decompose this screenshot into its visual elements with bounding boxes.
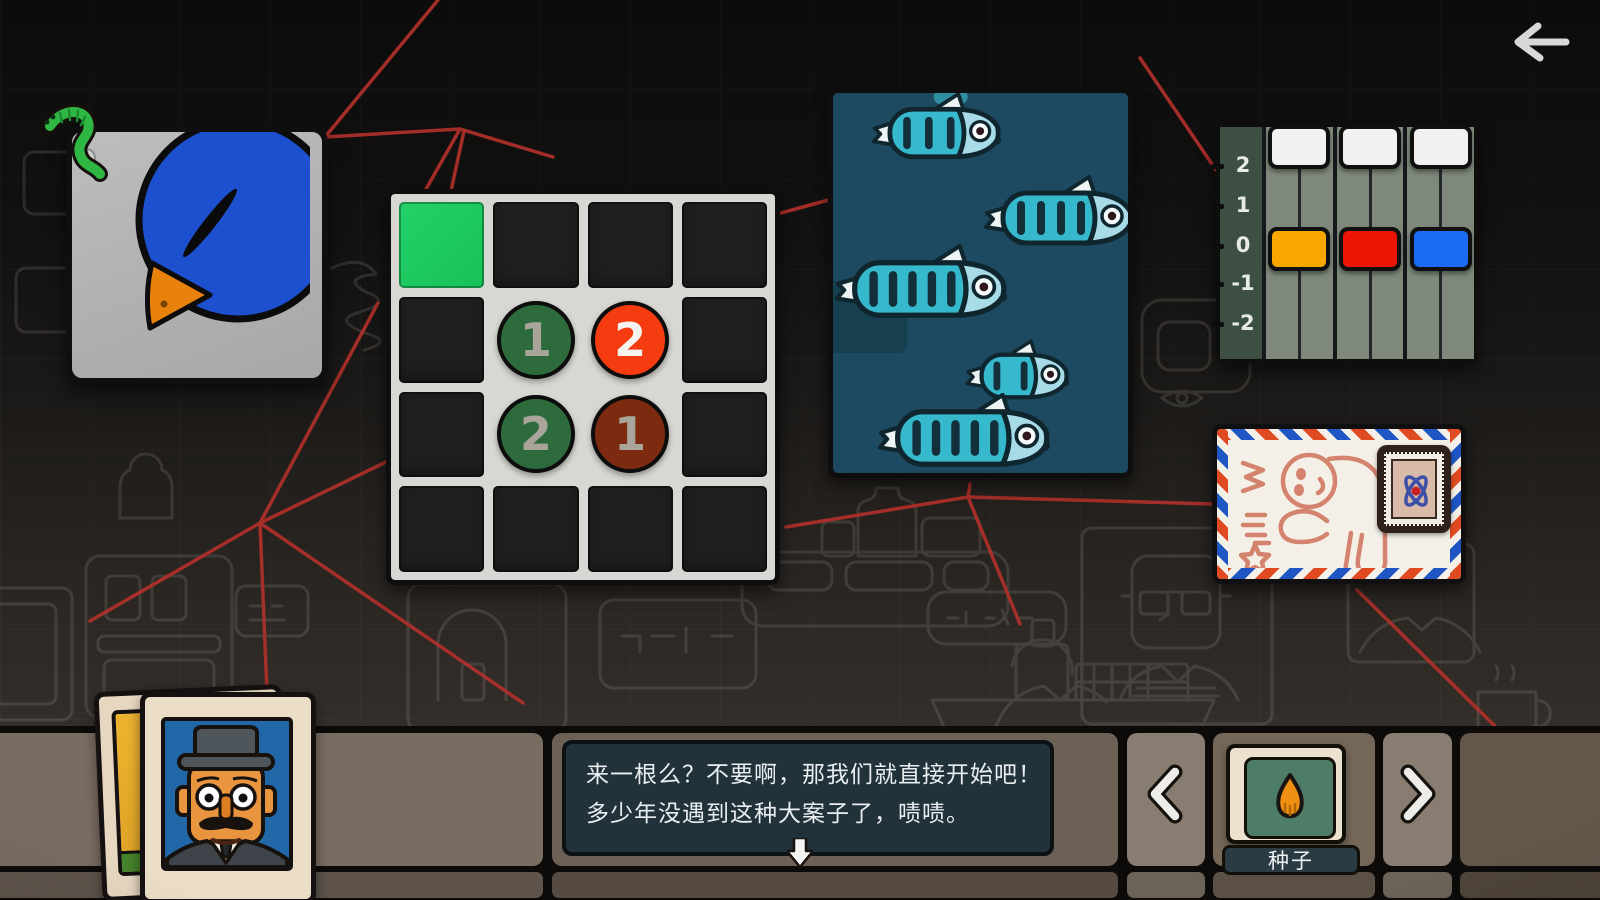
slider-block-value[interactable]: [1268, 227, 1330, 271]
atom-icon: [1391, 459, 1437, 519]
chevron-left-icon: [1143, 764, 1187, 824]
scale-tick: [1211, 282, 1224, 287]
continue-arrow-icon[interactable]: [787, 838, 813, 871]
grid-cell-r2c2[interactable]: 1: [588, 392, 673, 478]
airmail-border: [1217, 568, 1461, 579]
scale-label: -1: [1228, 271, 1258, 295]
evidence-board: 1221 210-1-2: [0, 0, 1600, 900]
grid-cell-r1c3[interactable]: [682, 297, 767, 383]
item-frame: [1244, 757, 1336, 839]
bar-strip: [1383, 872, 1452, 898]
grid-cell-r0c3[interactable]: [682, 202, 767, 288]
grid-cell-r0c1[interactable]: [493, 202, 578, 288]
grid-puzzle: 1221: [386, 189, 780, 585]
grid-cell-r3c0[interactable]: [399, 486, 484, 572]
chevron-right-icon: [1396, 764, 1440, 824]
bar-strip: [552, 872, 1118, 898]
bar-strip: [1460, 872, 1600, 898]
grid-cell-r0c0[interactable]: [399, 202, 484, 288]
grid-cell-r3c3[interactable]: [682, 486, 767, 572]
slider-block-value[interactable]: [1410, 227, 1472, 271]
fish[interactable]: [880, 395, 1049, 464]
grid-cell-r1c1[interactable]: 1: [493, 297, 578, 383]
airmail-border: [1217, 429, 1228, 579]
scale-label: 1: [1228, 193, 1258, 217]
fish-illustration: [833, 93, 1128, 473]
slider-panel: 210-1-2: [1216, 123, 1478, 363]
scale-tick: [1211, 164, 1224, 169]
slider-block-top[interactable]: [1410, 125, 1472, 169]
character-portrait: [161, 717, 293, 871]
portrait-card[interactable]: [140, 692, 316, 900]
fish[interactable]: [874, 93, 1000, 157]
grid-cell-r2c1[interactable]: 2: [493, 392, 578, 478]
stamp: [1377, 445, 1451, 533]
grid-cell-r2c3[interactable]: [682, 392, 767, 478]
bar-strip: [1213, 872, 1375, 898]
seed-icon: [1268, 771, 1312, 825]
slider-track-1[interactable]: [1262, 127, 1333, 359]
number-token[interactable]: 1: [497, 301, 575, 379]
grid-cells: 1221: [399, 202, 767, 572]
grid-cell-r1c0[interactable]: [399, 297, 484, 383]
slider-block-value[interactable]: [1339, 227, 1401, 271]
number-token[interactable]: 2: [591, 301, 669, 379]
fish[interactable]: [986, 177, 1128, 243]
fish[interactable]: [837, 246, 1006, 315]
worm-icon: [34, 102, 130, 198]
bar-section: [1460, 733, 1600, 866]
scale-tick: [1211, 204, 1224, 209]
bird-card[interactable]: [66, 126, 328, 384]
scale-tick: [1211, 244, 1224, 249]
envelope[interactable]: [1212, 424, 1466, 584]
number-token[interactable]: 2: [497, 395, 575, 473]
fish[interactable]: [967, 341, 1068, 397]
scale-label: 2: [1228, 153, 1258, 177]
item-label: 种子: [1222, 845, 1360, 875]
fish-panel[interactable]: [828, 88, 1133, 478]
slider-block-top[interactable]: [1268, 125, 1330, 169]
grid-cell-r2c0[interactable]: [399, 392, 484, 478]
prev-item-button[interactable]: [1143, 764, 1187, 824]
slider-track-3[interactable]: [1403, 127, 1474, 359]
dialogue-line: 来一根么？不要啊，那我们就直接开始吧！: [586, 756, 1030, 795]
dialogue-line: 多少年没遇到这种大案子了，啧啧。: [586, 795, 1030, 834]
inventory-item[interactable]: [1226, 744, 1346, 844]
airmail-border: [1217, 429, 1461, 440]
scale-tick: [1211, 322, 1224, 327]
slider-block-top[interactable]: [1339, 125, 1401, 169]
back-arrow-icon: [1504, 18, 1576, 66]
slider-scale: 210-1-2: [1220, 127, 1262, 359]
portrait-card-stack[interactable]: [96, 680, 316, 900]
slider-track-2[interactable]: [1333, 127, 1404, 359]
next-item-button[interactable]: [1396, 764, 1440, 824]
slider-tracks: [1262, 127, 1474, 359]
stamp-paper: [1384, 452, 1444, 526]
scale-label: -2: [1228, 311, 1258, 335]
grid-cell-r3c1[interactable]: [493, 486, 578, 572]
grid-cell-r0c2[interactable]: [588, 202, 673, 288]
bar-strip: [1127, 872, 1205, 898]
back-arrow-button[interactable]: [1504, 18, 1576, 66]
number-token[interactable]: 1: [591, 395, 669, 473]
grid-cell-r3c2[interactable]: [588, 486, 673, 572]
scale-label: 0: [1228, 233, 1258, 257]
airmail-border: [1450, 429, 1461, 579]
grid-cell-r1c2[interactable]: 2: [588, 297, 673, 383]
